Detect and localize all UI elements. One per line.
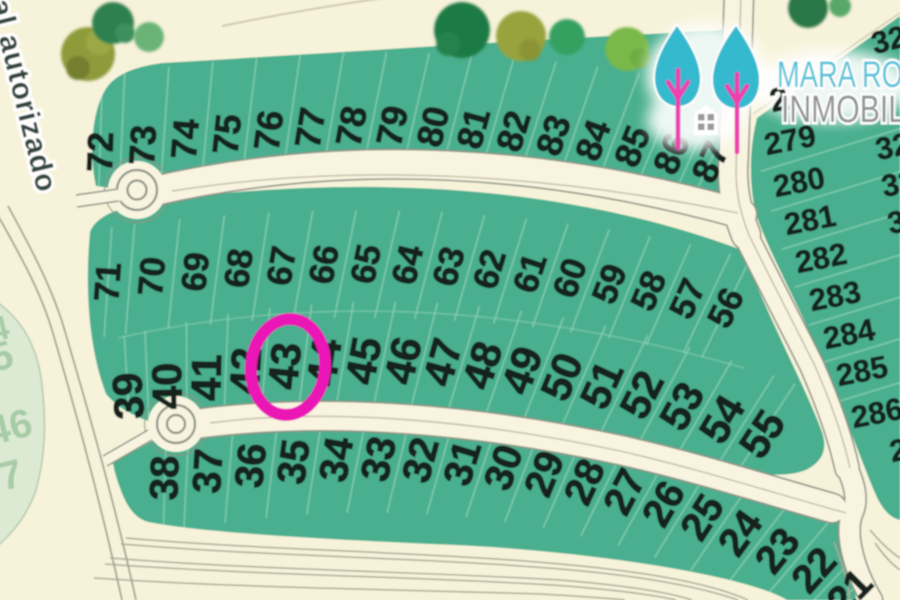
svg-text:74: 74 (163, 117, 207, 160)
svg-text:35: 35 (269, 437, 319, 487)
svg-text:77: 77 (287, 105, 334, 151)
svg-text:37: 37 (185, 447, 232, 494)
svg-text:75: 75 (204, 112, 249, 156)
svg-text:67: 67 (259, 244, 304, 289)
svg-text:INMOBIL: INMOBIL (781, 89, 900, 131)
svg-text:72: 72 (79, 131, 121, 172)
svg-text:71: 71 (87, 261, 129, 303)
svg-text:65: 65 (343, 241, 389, 287)
svg-text:36: 36 (227, 441, 275, 490)
svg-text:78: 78 (327, 103, 375, 150)
svg-text:68: 68 (217, 246, 261, 290)
svg-text:73: 73 (121, 124, 164, 166)
svg-text:76: 76 (246, 108, 292, 153)
svg-text:69: 69 (174, 250, 217, 293)
svg-text:38: 38 (142, 455, 187, 501)
svg-text:66: 66 (301, 242, 347, 288)
svg-text:79: 79 (368, 102, 417, 150)
svg-text:70: 70 (131, 255, 173, 297)
